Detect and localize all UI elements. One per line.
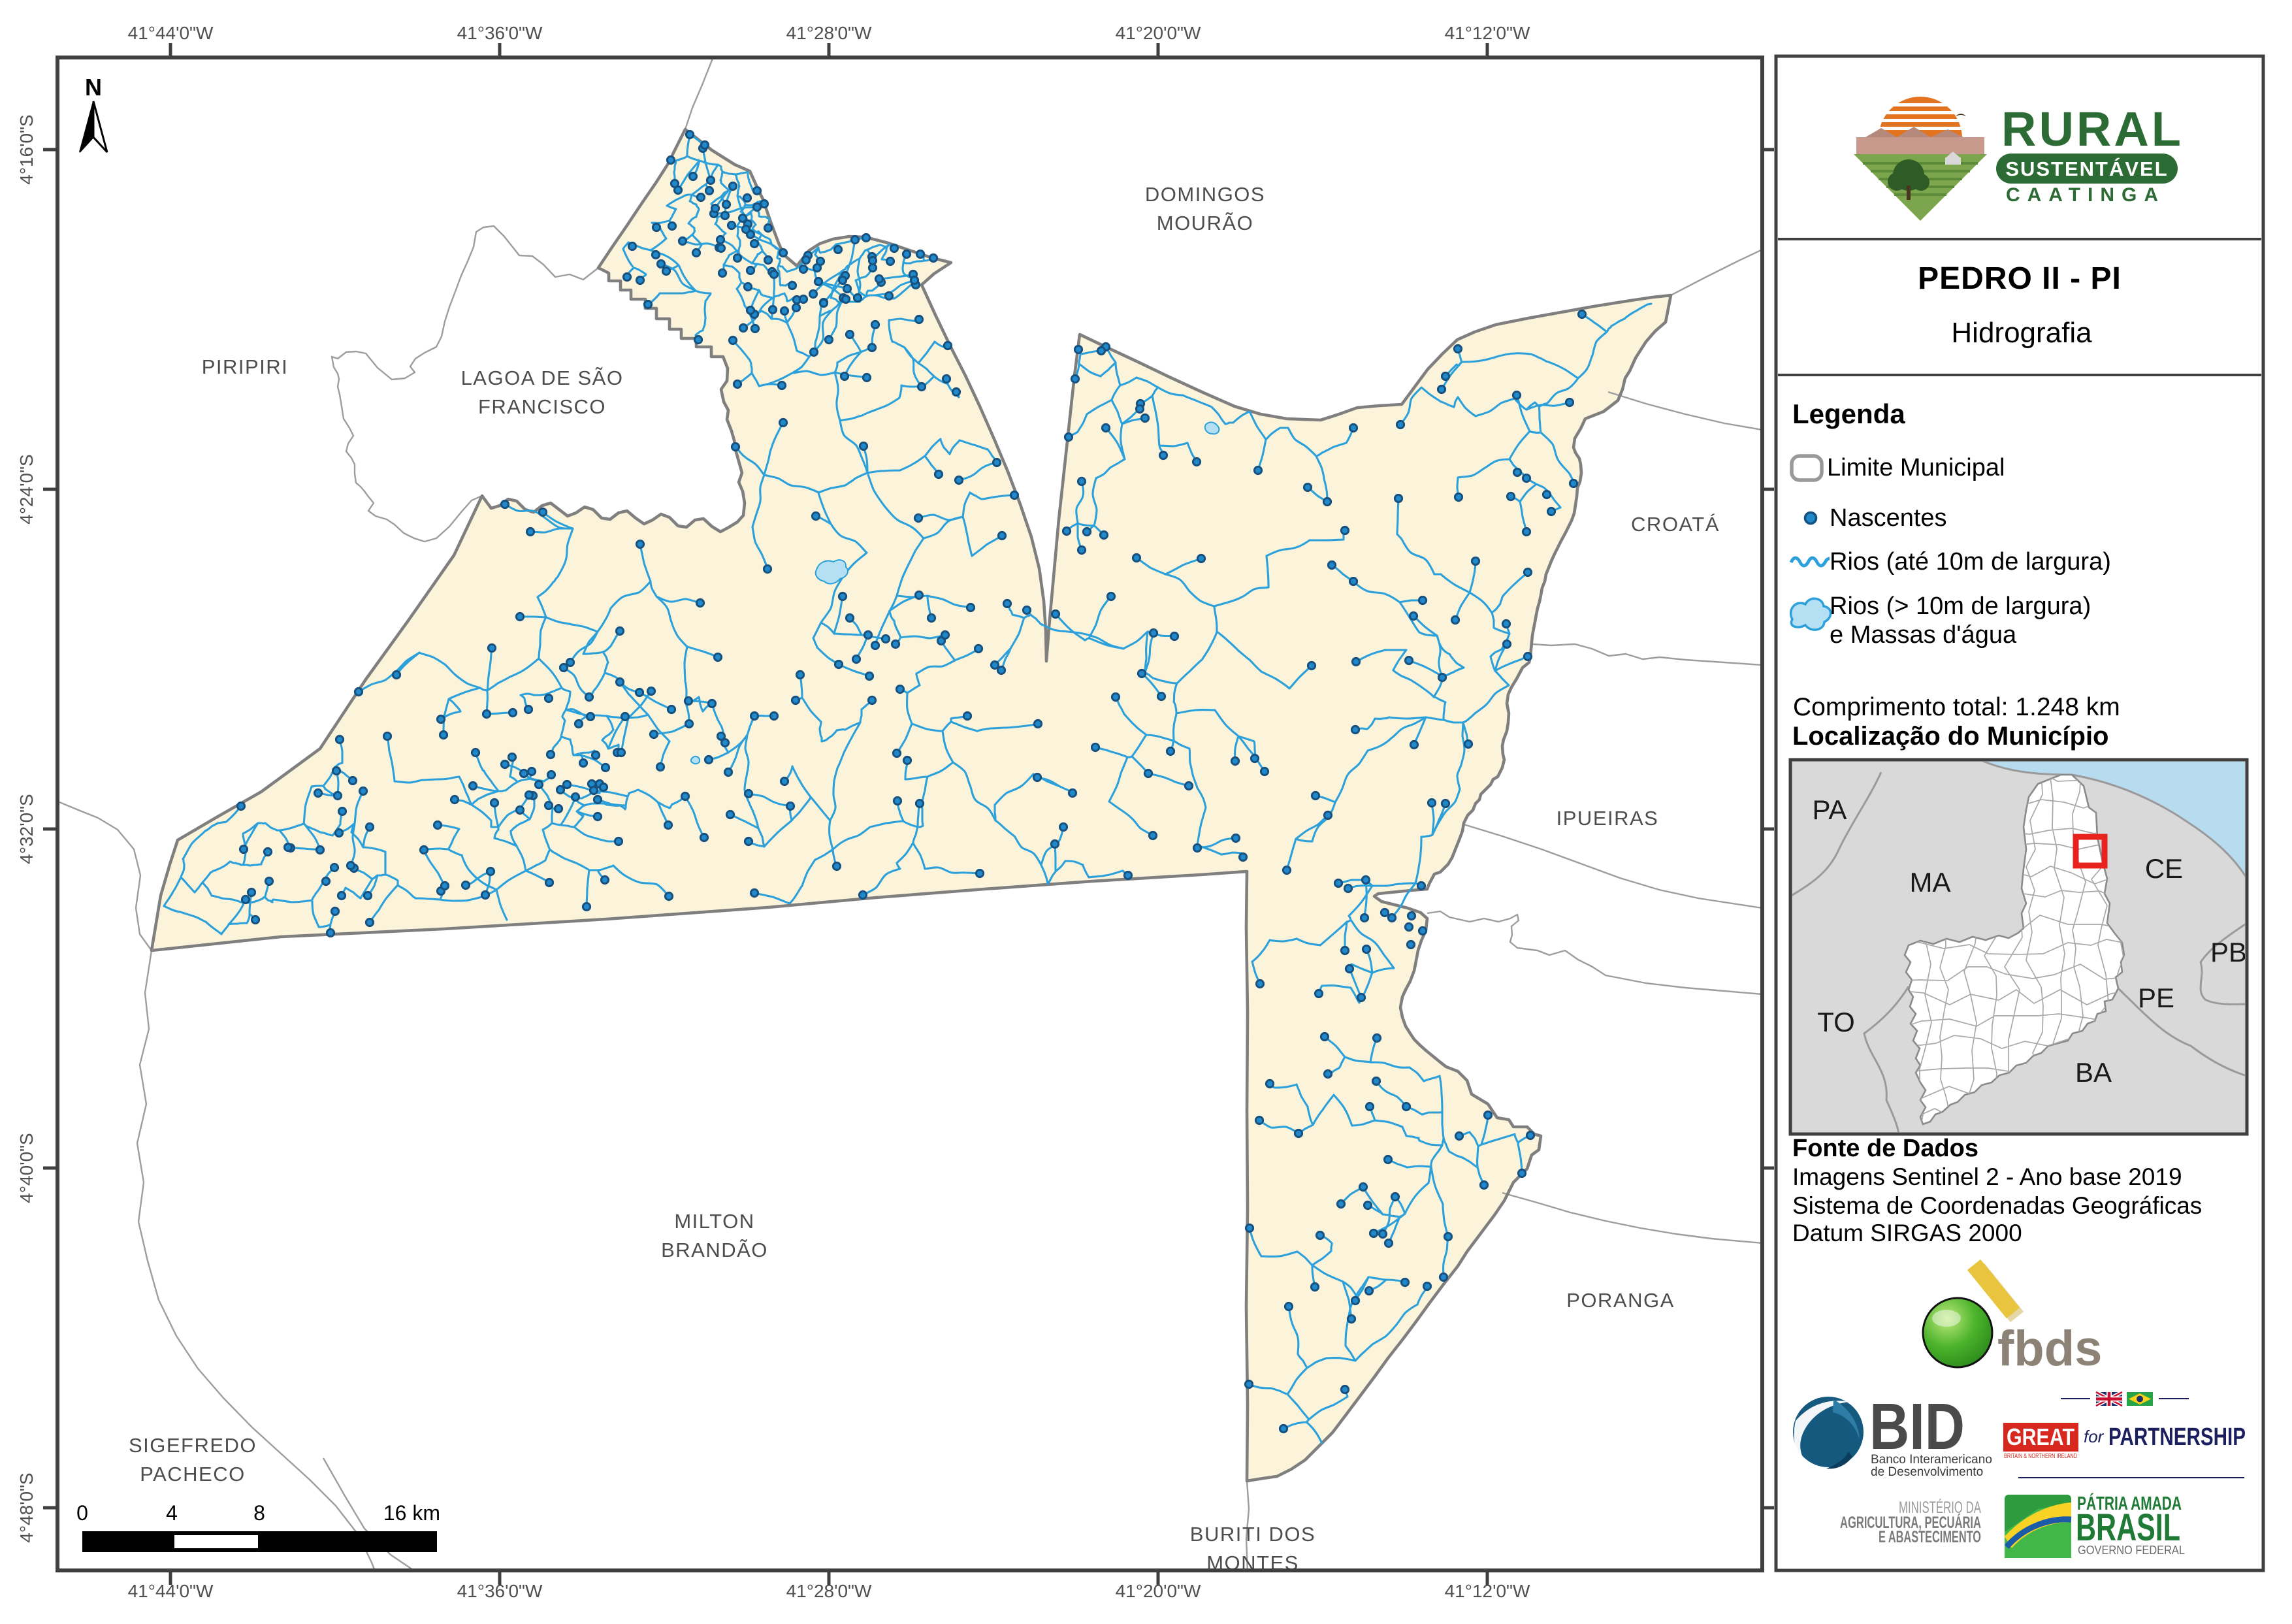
svg-text:PACHECO: PACHECO [140, 1463, 246, 1486]
svg-text:41°44'0"W: 41°44'0"W [128, 23, 214, 43]
svg-text:4°32'0"S: 4°32'0"S [16, 794, 37, 864]
svg-text:GREAT: GREAT [2007, 1423, 2074, 1450]
svg-text:41°28'0"W: 41°28'0"W [786, 1581, 872, 1601]
svg-text:4°24'0"S: 4°24'0"S [16, 454, 37, 524]
svg-text:4°48'0"S: 4°48'0"S [16, 1472, 37, 1542]
svg-text:TO: TO [1817, 1007, 1855, 1037]
svg-text:16 km: 16 km [383, 1501, 440, 1525]
svg-text:PARTNERSHIP: PARTNERSHIP [2108, 1423, 2246, 1451]
svg-text:PEDRO II - PI: PEDRO II - PI [1918, 261, 2122, 296]
svg-text:41°36'0"W: 41°36'0"W [457, 23, 543, 43]
svg-text:Rios (> 10m de largura): Rios (> 10m de largura) [1830, 593, 2091, 620]
svg-text:Datum SIRGAS 2000: Datum SIRGAS 2000 [1792, 1220, 2022, 1246]
svg-text:4°16'0"S: 4°16'0"S [16, 114, 37, 184]
svg-text:CROATÁ: CROATÁ [1631, 513, 1720, 536]
svg-text:Comprimento total: 1.248 km: Comprimento total: 1.248 km [1793, 693, 2120, 721]
svg-text:Banco Interamericano: Banco Interamericano [1871, 1453, 1992, 1467]
svg-text:SIGEFREDO: SIGEFREDO [129, 1434, 257, 1457]
svg-text:RURAL: RURAL [2001, 102, 2184, 156]
svg-text:BRITAIN & NORTHERN IRELAND: BRITAIN & NORTHERN IRELAND [2004, 1453, 2077, 1460]
svg-text:IPUEIRAS: IPUEIRAS [1557, 807, 1659, 830]
svg-text:N: N [85, 74, 102, 101]
svg-text:de Desenvolvimento: de Desenvolvimento [1871, 1465, 1983, 1479]
svg-text:BRASIL: BRASIL [2076, 1506, 2180, 1549]
svg-text:4: 4 [166, 1501, 178, 1525]
svg-text:BA: BA [2075, 1057, 2112, 1088]
svg-text:Legenda: Legenda [1792, 398, 1905, 429]
svg-text:GOVERNO FEDERAL: GOVERNO FEDERAL [2078, 1544, 2185, 1557]
svg-text:Rios (até 10m de largura): Rios (até 10m de largura) [1830, 548, 2111, 576]
svg-text:Imagens Sentinel 2 - Ano base: Imagens Sentinel 2 - Ano base 2019 [1792, 1163, 2182, 1190]
svg-text:Limite Municipal: Limite Municipal [1827, 454, 2005, 481]
svg-text:CAATINGA: CAATINGA [2006, 184, 2165, 206]
svg-text:0: 0 [76, 1501, 88, 1525]
svg-text:PORANGA: PORANGA [1566, 1289, 1675, 1312]
svg-text:Sistema de Coordenadas Geográf: Sistema de Coordenadas Geográficas [1792, 1192, 2202, 1219]
svg-text:Localização do Município: Localização do Município [1792, 722, 2109, 751]
svg-text:4°40'0"S: 4°40'0"S [16, 1133, 37, 1203]
svg-text:CE: CE [2145, 853, 2183, 884]
svg-text:Nascentes: Nascentes [1830, 504, 1947, 532]
svg-text:PB: PB [2210, 937, 2247, 967]
svg-text:Fonte de Dados: Fonte de Dados [1792, 1135, 1978, 1162]
svg-text:fbds: fbds [1997, 1321, 2102, 1376]
svg-text:for: for [2084, 1427, 2105, 1446]
svg-text:MOURÃO: MOURÃO [1157, 212, 1254, 235]
svg-text:DOMINGOS: DOMINGOS [1145, 183, 1265, 206]
svg-text:Hidrografia: Hidrografia [1951, 317, 2092, 349]
svg-text:MILTON: MILTON [674, 1210, 754, 1233]
svg-text:PE: PE [2138, 983, 2174, 1013]
svg-text:41°12'0"W: 41°12'0"W [1445, 23, 1530, 43]
svg-text:41°12'0"W: 41°12'0"W [1445, 1581, 1530, 1601]
svg-text:BRANDÃO: BRANDÃO [661, 1239, 768, 1261]
svg-text:BURITI DOS: BURITI DOS [1190, 1523, 1315, 1546]
svg-text:41°44'0"W: 41°44'0"W [128, 1581, 214, 1601]
svg-text:41°20'0"W: 41°20'0"W [1116, 23, 1201, 43]
svg-text:e Massas d'água: e Massas d'água [1830, 621, 2017, 649]
svg-text:FRANCISCO: FRANCISCO [478, 395, 606, 418]
svg-text:8: 8 [253, 1501, 265, 1525]
svg-text:PIRIPIRI: PIRIPIRI [202, 355, 289, 378]
svg-text:MA: MA [1910, 867, 1951, 898]
svg-text:41°28'0"W: 41°28'0"W [786, 23, 872, 43]
svg-text:PA: PA [1813, 794, 1847, 825]
svg-text:SUSTENTÁVEL: SUSTENTÁVEL [2005, 157, 2168, 180]
svg-text:41°36'0"W: 41°36'0"W [457, 1581, 543, 1601]
svg-text:E ABASTECIMENTO: E ABASTECIMENTO [1879, 1528, 1981, 1546]
svg-text:LAGOA DE SÃO: LAGOA DE SÃO [461, 366, 624, 389]
svg-text:41°20'0"W: 41°20'0"W [1116, 1581, 1201, 1601]
